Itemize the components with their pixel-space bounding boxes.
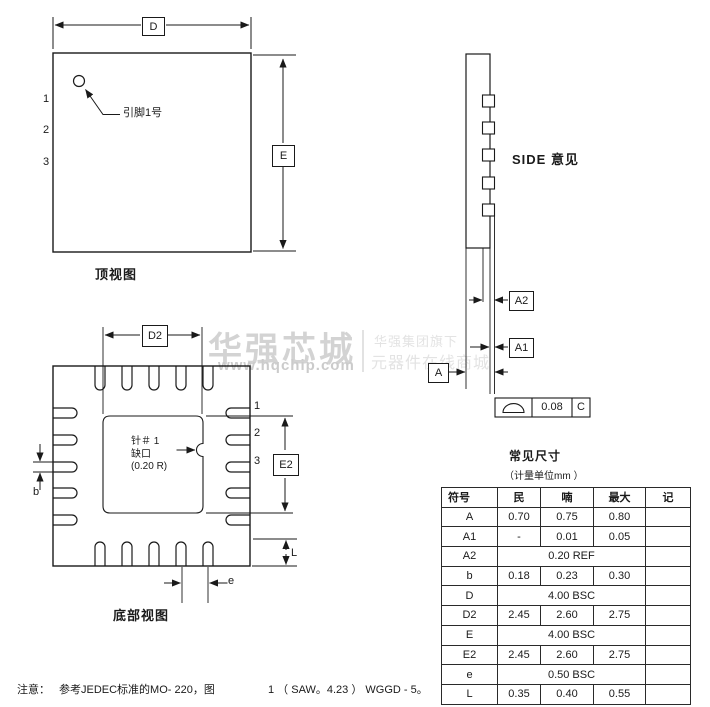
notch-note-line-2: 缺口 xyxy=(131,449,167,462)
table-row: A1-0.010.05 xyxy=(442,527,691,547)
cell-span-value: 4.00 BSC xyxy=(498,625,646,645)
cell-nom: 0.40 xyxy=(541,684,594,704)
cell-note xyxy=(646,566,691,586)
tolerance-value: 0.08 xyxy=(536,401,568,414)
table-subtitle: （计量单位mm ） xyxy=(504,467,691,482)
cell-nom: 2.60 xyxy=(541,606,594,626)
dim-label-e: e xyxy=(228,575,234,588)
cell-max: 0.05 xyxy=(594,527,646,547)
table-row: L0.350.400.55 xyxy=(442,684,691,704)
cell-min: 0.35 xyxy=(498,684,541,704)
cell-span-value: 4.00 BSC xyxy=(498,586,646,606)
cell-note xyxy=(646,665,691,685)
cell-nom: 0.23 xyxy=(541,566,594,586)
package-outline-drawing-page: 华强芯城 www.hqchip.com 华强集团旗下 元器件在线商城 xyxy=(0,0,710,707)
seating-plane-icon xyxy=(503,404,524,413)
cell-symbol: A2 xyxy=(442,547,498,567)
cell-max: 0.55 xyxy=(594,684,646,704)
cell-note xyxy=(646,684,691,704)
bottom-view-pin-number-2: 2 xyxy=(254,427,260,440)
side-view-leads xyxy=(483,95,495,216)
table-row: D22.452.602.75 xyxy=(442,606,691,626)
dim-label-A2: A2 xyxy=(509,291,534,311)
cell-note xyxy=(646,586,691,606)
notch-note-line-1: 针＃ 1 xyxy=(131,436,167,449)
cell-min: 2.45 xyxy=(498,606,541,626)
cell-symbol: e xyxy=(442,665,498,685)
dimensions-table-section: 常见尺寸 （计量单位mm ） 符号 民 喃 最大 记 A0.700.750.80… xyxy=(441,447,691,705)
cell-min: 0.70 xyxy=(498,507,541,527)
top-view-pin-number-2: 2 xyxy=(43,124,49,137)
dim-label-E: E xyxy=(272,145,295,167)
cell-symbol: A1 xyxy=(442,527,498,547)
cell-min: 0.18 xyxy=(498,566,541,586)
cell-symbol: L xyxy=(442,684,498,704)
dim-label-D: D xyxy=(142,17,165,36)
note-label: 注意： xyxy=(17,681,50,697)
table-row: b0.180.230.30 xyxy=(442,566,691,586)
col-header-max: 最大 xyxy=(594,488,646,508)
cell-max: 2.75 xyxy=(594,606,646,626)
dim-label-L: L xyxy=(291,547,297,560)
cell-max: 2.75 xyxy=(594,645,646,665)
cell-symbol: A xyxy=(442,507,498,527)
table-row: E4.00 BSC xyxy=(442,625,691,645)
bottom-view-title: 底部视图 xyxy=(113,605,169,624)
col-header-note: 记 xyxy=(646,488,691,508)
bottom-view-pin-number-3: 3 xyxy=(254,455,260,468)
bottom-view-pin-number-1: 1 xyxy=(254,400,260,413)
cell-note xyxy=(646,645,691,665)
table-row: E22.452.602.75 xyxy=(442,645,691,665)
cell-note xyxy=(646,606,691,626)
pin1-leader-arrow xyxy=(86,90,121,115)
cell-nom: 0.75 xyxy=(541,507,594,527)
cell-min: 2.45 xyxy=(498,645,541,665)
table-row: D4.00 BSC xyxy=(442,586,691,606)
cell-note xyxy=(646,507,691,527)
cell-nom: 2.60 xyxy=(541,645,594,665)
cell-min: - xyxy=(498,527,541,547)
cell-symbol: D2 xyxy=(442,606,498,626)
dim-label-b: b xyxy=(33,486,39,499)
cell-note xyxy=(646,527,691,547)
pin1-notch-note: 针＃ 1 缺口 (0.20 R) xyxy=(131,436,167,474)
top-view-outline xyxy=(53,53,251,252)
col-header-symbol: 符号 xyxy=(442,488,498,508)
dim-label-E2: E2 xyxy=(273,454,299,476)
dimensions-table: 符号 民 喃 最大 记 A0.700.750.80 A1-0.010.05 A2… xyxy=(441,487,691,705)
cell-symbol: E xyxy=(442,625,498,645)
top-view-title: 顶视图 xyxy=(95,264,137,283)
cell-nom: 0.01 xyxy=(541,527,594,547)
col-header-nom: 喃 xyxy=(541,488,594,508)
cell-symbol: E2 xyxy=(442,645,498,665)
cell-note xyxy=(646,625,691,645)
note-text-1: 参考JEDEC标准的MO- 220，图 xyxy=(59,681,215,697)
pin1-label: 引脚1号 xyxy=(123,107,162,120)
top-view-pin-number-1: 1 xyxy=(43,93,49,106)
notch-note-line-3: (0.20 R) xyxy=(131,461,167,474)
top-view-pin-number-3: 3 xyxy=(43,156,49,169)
dim-label-A1: A1 xyxy=(509,338,534,358)
cell-span-value: 0.50 BSC xyxy=(498,665,646,685)
col-header-min: 民 xyxy=(498,488,541,508)
cell-symbol: b xyxy=(442,566,498,586)
cell-max: 0.30 xyxy=(594,566,646,586)
cell-note xyxy=(646,547,691,567)
note-text-2: 1 （ SAW。4.23 ） WGGD - 5。 xyxy=(268,681,428,697)
table-title: 常见尺寸 xyxy=(509,447,691,464)
side-view-title: SIDE 意见 xyxy=(512,149,579,168)
table-header-row: 符号 民 喃 最大 记 xyxy=(442,488,691,508)
dim-label-D2: D2 xyxy=(142,325,168,347)
table-row: A0.700.750.80 xyxy=(442,507,691,527)
tolerance-datum: C xyxy=(572,401,590,414)
cell-max: 0.80 xyxy=(594,507,646,527)
table-row: e0.50 BSC xyxy=(442,665,691,685)
table-row: A20.20 REF xyxy=(442,547,691,567)
top-view-drawing xyxy=(53,17,296,252)
cell-symbol: D xyxy=(442,586,498,606)
cell-span-value: 0.20 REF xyxy=(498,547,646,567)
dim-label-A: A xyxy=(428,363,449,383)
side-view-drawing xyxy=(449,54,590,417)
pin1-marker-circle xyxy=(74,76,85,87)
